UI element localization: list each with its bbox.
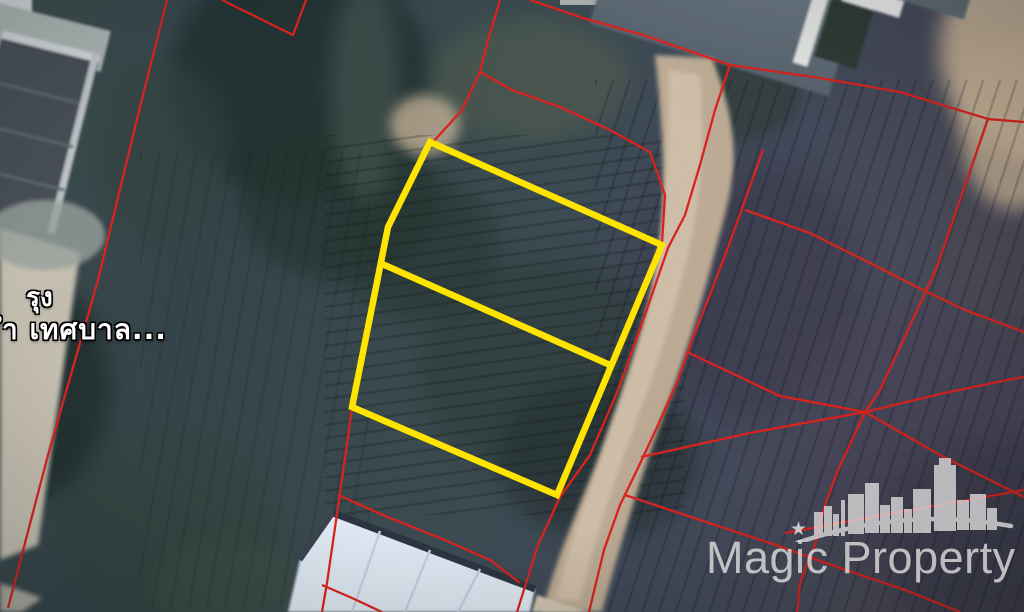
map-place-label-line2: ำ เทศบาล... bbox=[2, 314, 167, 346]
parcel-line-east-vertical-boundary bbox=[797, 119, 988, 612]
parcel-line-branch-to-plot-ne-corner bbox=[480, 72, 665, 243]
highlighted-plot-divider bbox=[380, 263, 610, 365]
parcel-line-east-divider-falling bbox=[687, 352, 1024, 497]
map-place-label-line1: รุง bbox=[26, 284, 167, 314]
parcel-line-east-divider-upper bbox=[745, 210, 1024, 332]
map-place-label: รุง ำ เทศบาล... bbox=[0, 284, 167, 346]
left-lane bbox=[0, 228, 80, 560]
parcel-line-north-notch bbox=[222, 0, 306, 35]
parcel-line-northeast-corner-line bbox=[433, 0, 500, 142]
parcel-line-south-divider bbox=[625, 495, 960, 612]
satellite-map-canvas: รุง ำ เทศบาล... ★ bbox=[0, 0, 1024, 612]
south-warehouse bbox=[288, 513, 588, 612]
parcel-line-east-divider-rising bbox=[641, 377, 1024, 457]
left-lane-lower bbox=[0, 583, 42, 612]
north-warehouse bbox=[589, 0, 973, 96]
parcel-line-east-divider-lower bbox=[785, 490, 1024, 533]
gravel-yard bbox=[0, 200, 105, 270]
